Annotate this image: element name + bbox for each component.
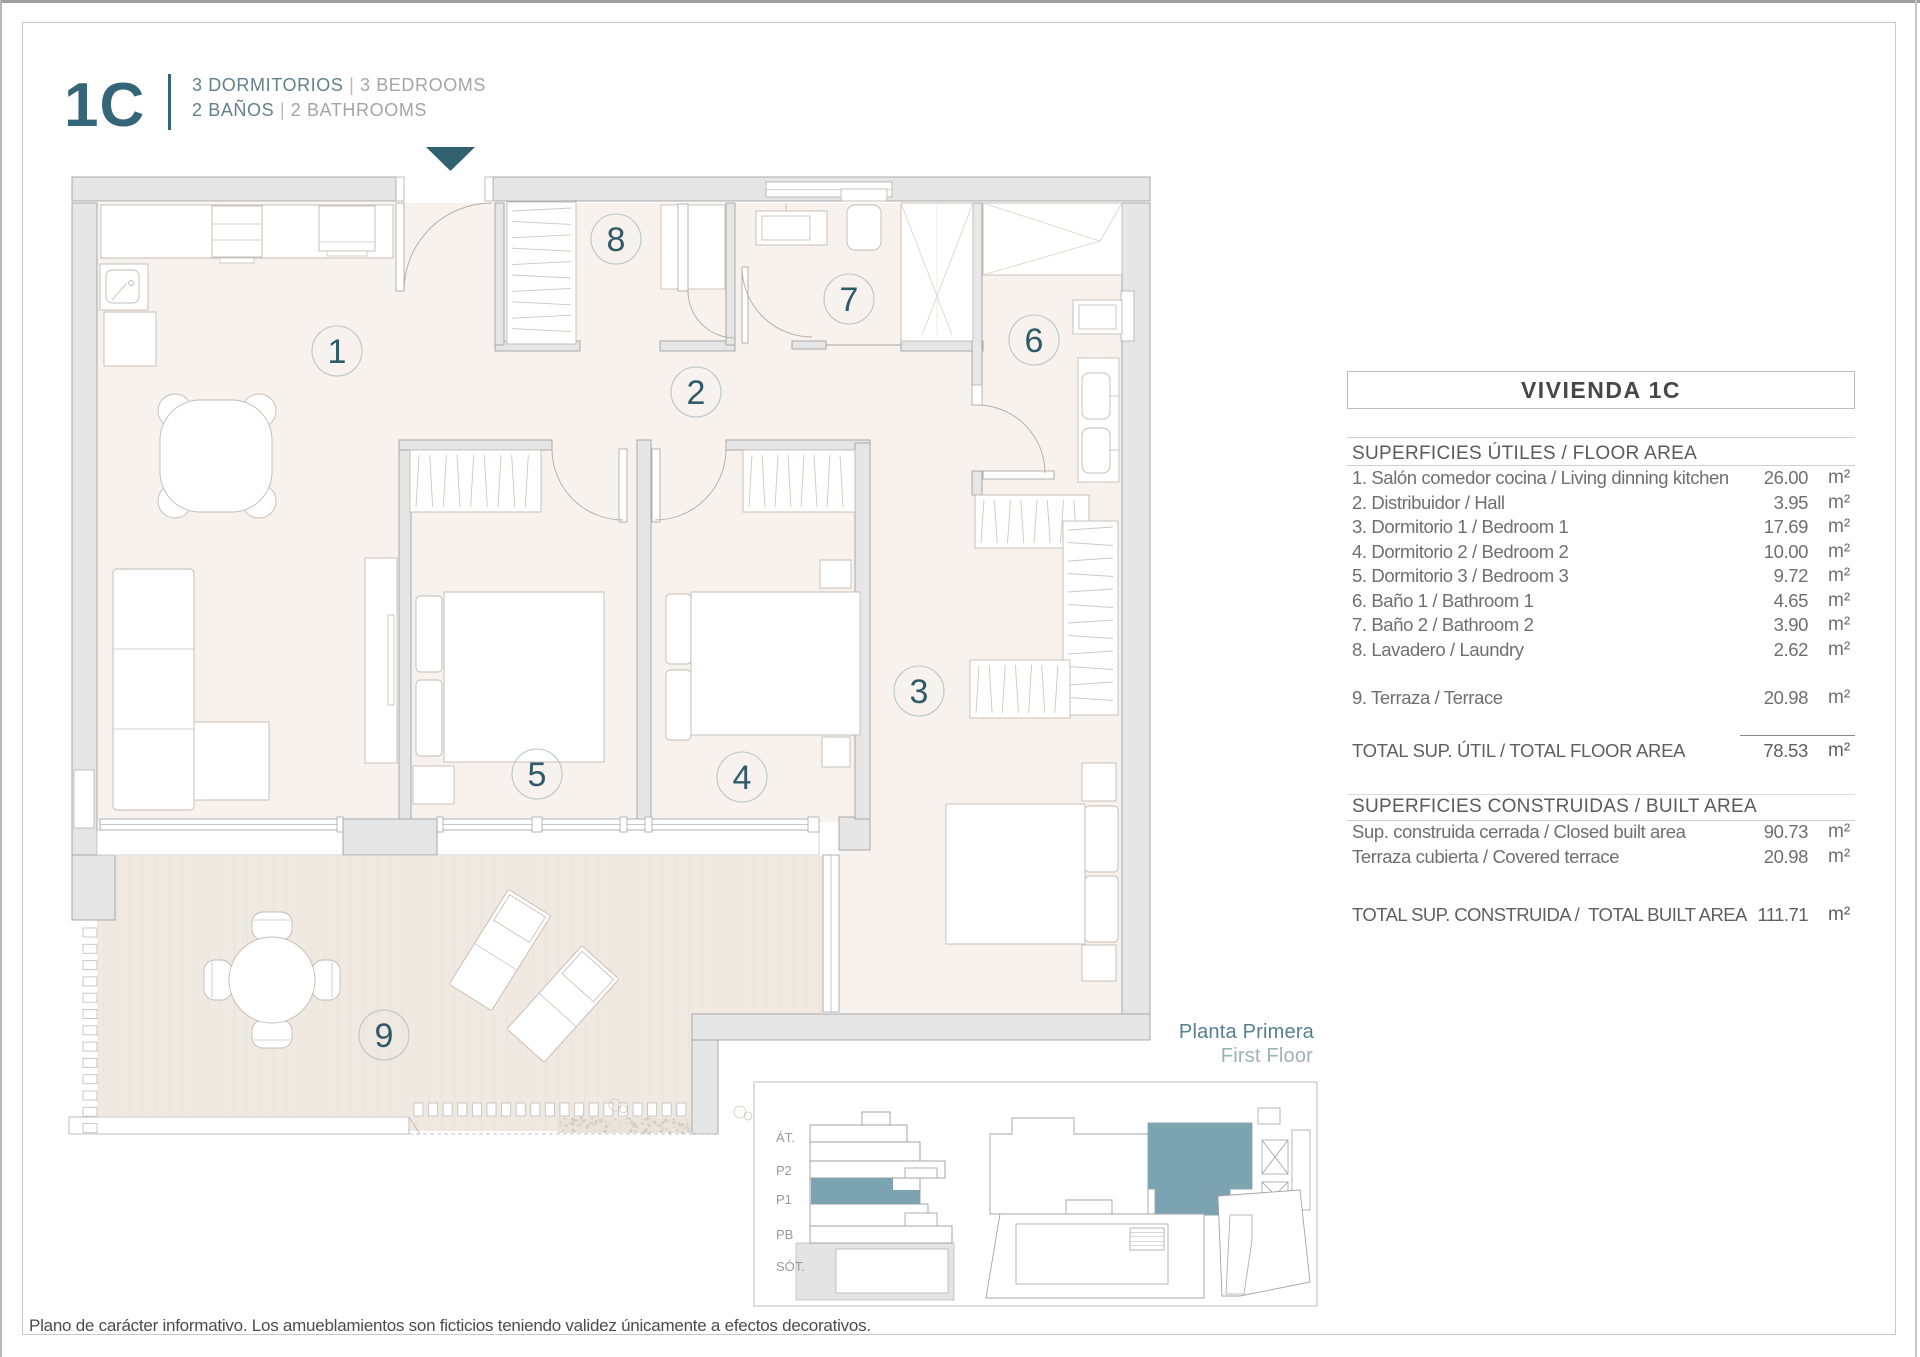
svg-text:P1: P1 bbox=[776, 1192, 792, 1207]
svg-text:ÁT.: ÁT. bbox=[776, 1130, 795, 1145]
svg-text:8: 8 bbox=[607, 221, 626, 259]
svg-text:6: 6 bbox=[1025, 322, 1044, 360]
svg-text:7: 7 bbox=[840, 281, 859, 319]
svg-text:1: 1 bbox=[328, 333, 347, 371]
svg-text:P2: P2 bbox=[776, 1163, 792, 1178]
svg-text:3: 3 bbox=[910, 673, 929, 711]
svg-text:PB: PB bbox=[776, 1227, 793, 1242]
svg-text:4: 4 bbox=[733, 759, 752, 797]
svg-text:9: 9 bbox=[375, 1017, 394, 1055]
svg-text:5: 5 bbox=[528, 756, 547, 794]
svg-text:SÓT.: SÓT. bbox=[776, 1259, 805, 1274]
svg-text:2: 2 bbox=[687, 374, 706, 412]
